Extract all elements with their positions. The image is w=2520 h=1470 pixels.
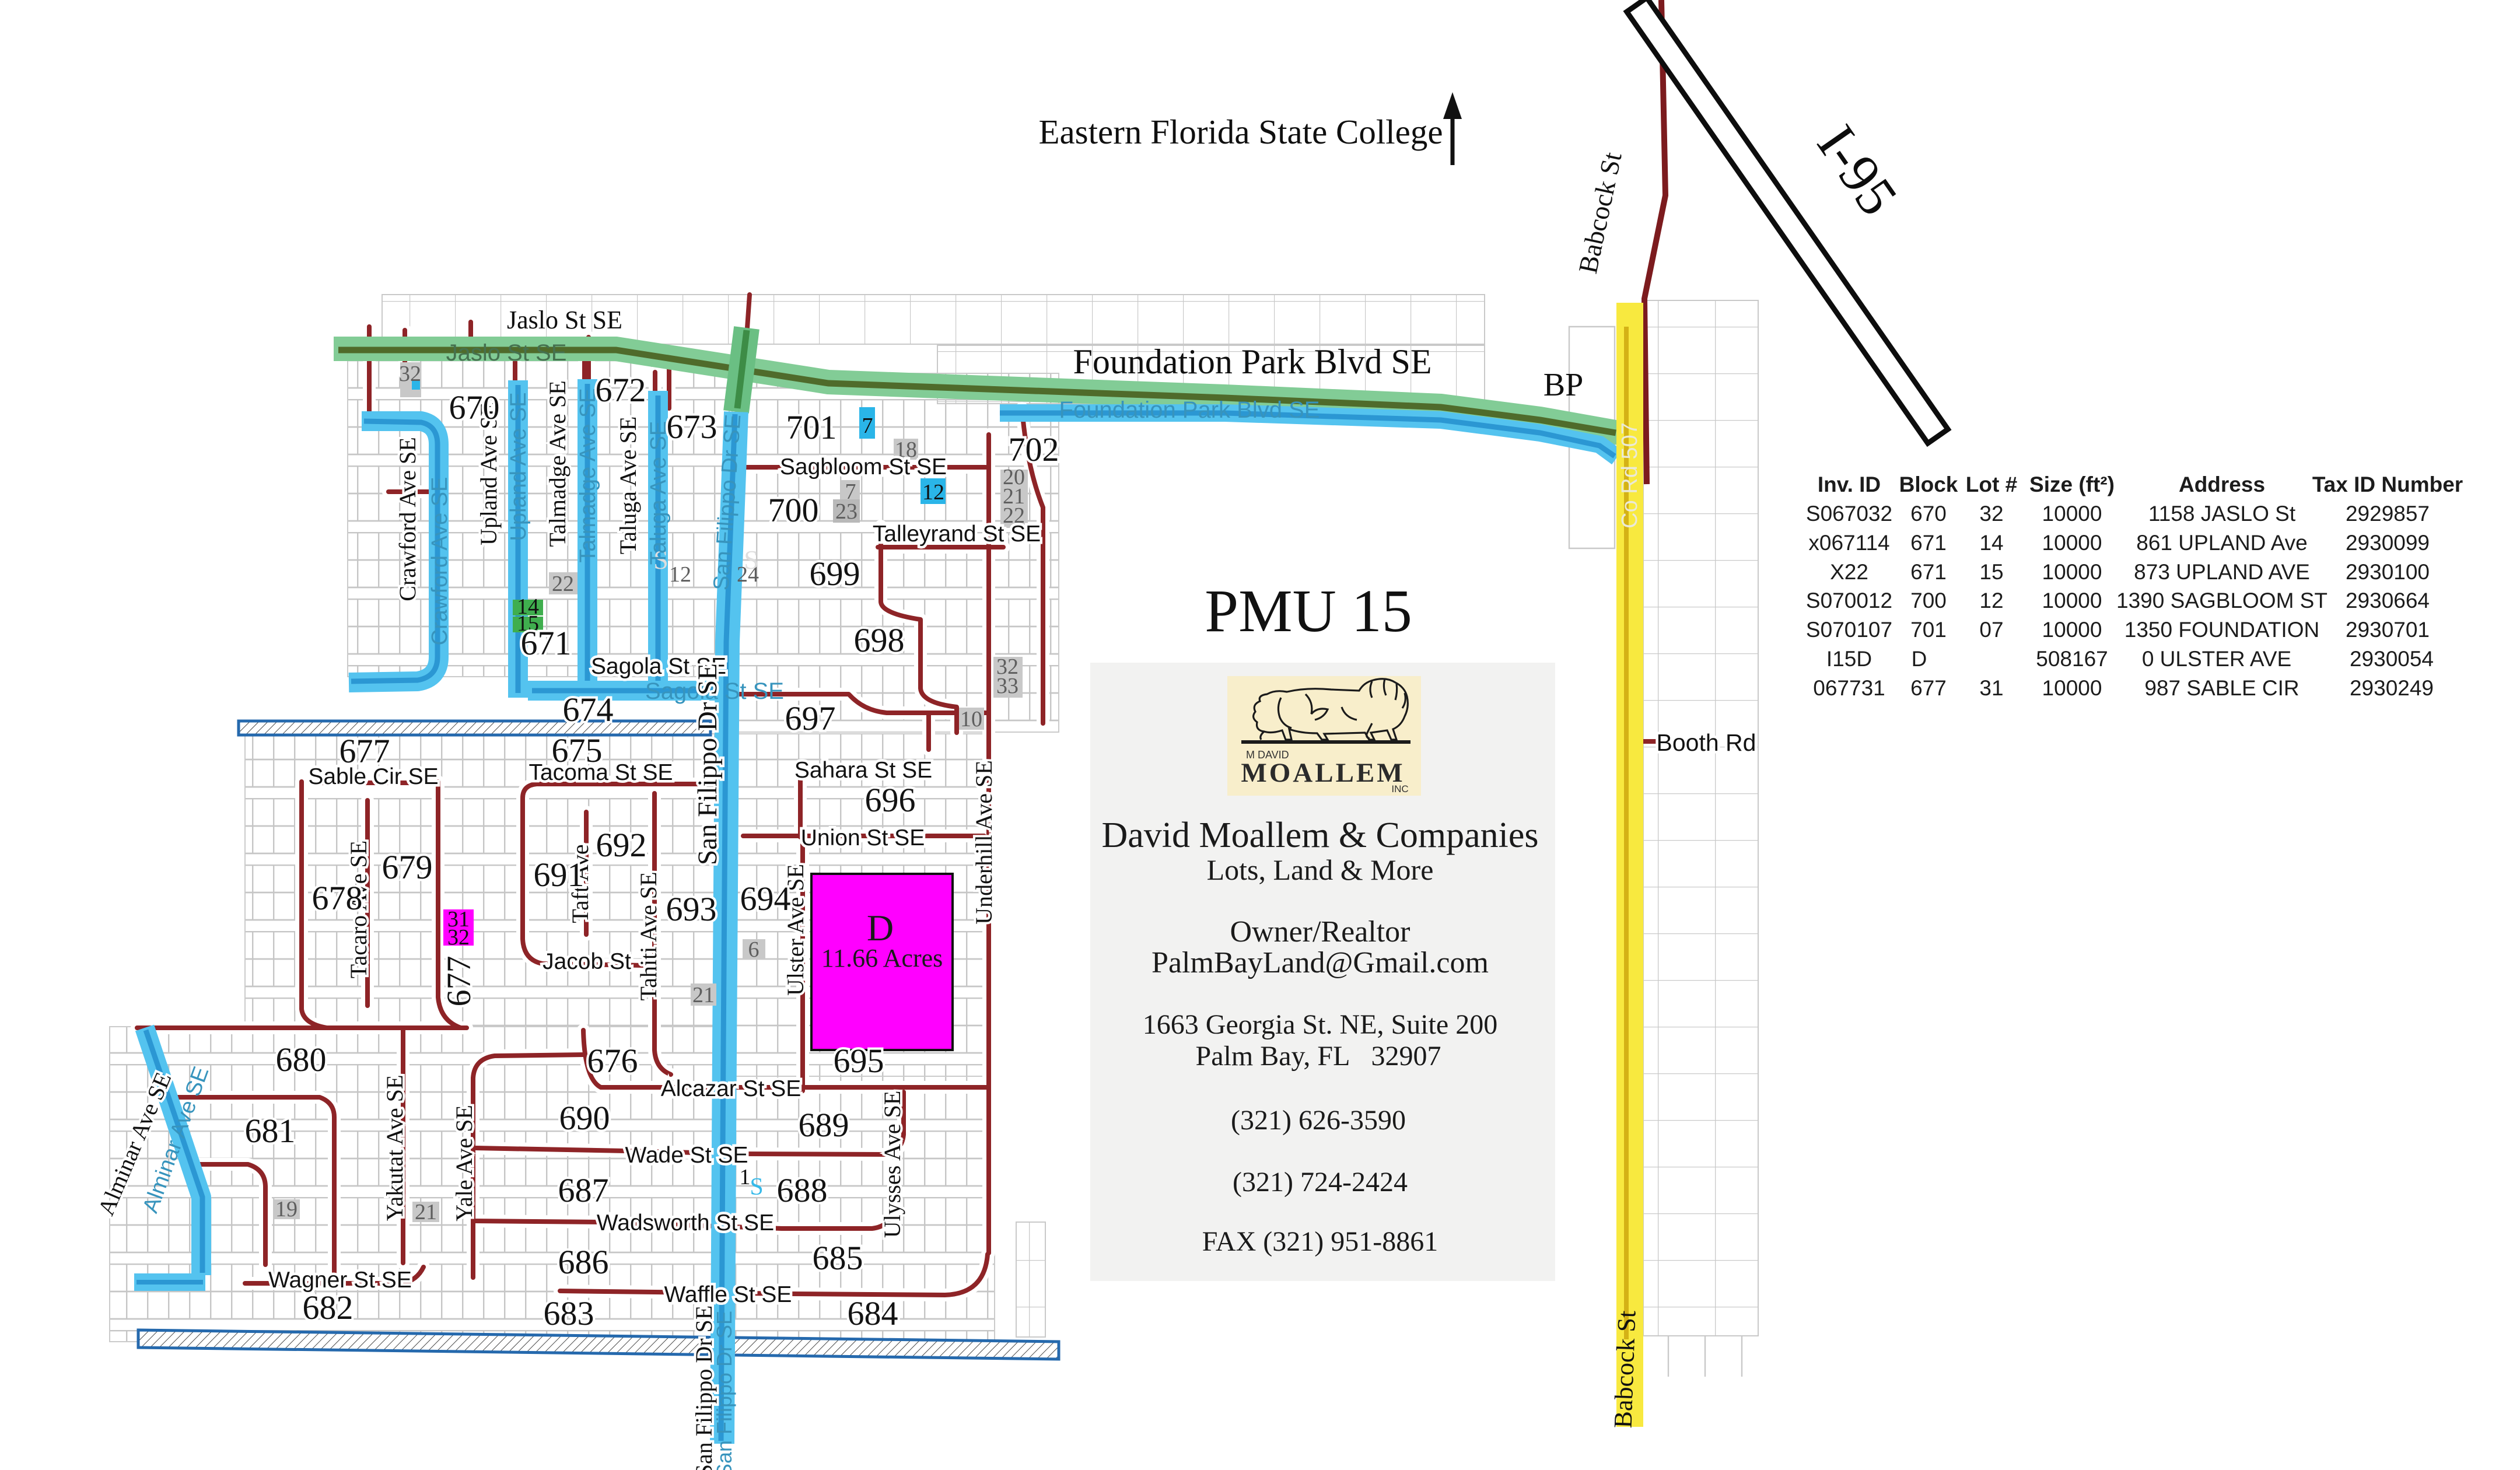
svg-text:679: 679	[382, 848, 433, 886]
svg-text:INC: INC	[1391, 783, 1408, 794]
svg-text:Tahiti Ave SE: Tahiti Ave SE	[635, 872, 661, 1001]
svg-text:677: 677	[1910, 676, 1947, 700]
svg-text:680: 680	[276, 1041, 327, 1079]
svg-text:Palm Bay, FL 32907: Palm Bay, FL 32907	[1196, 1041, 1441, 1072]
svg-text:Block: Block	[1899, 473, 1958, 496]
svg-text:32: 32	[447, 925, 470, 950]
svg-text:Lot #: Lot #	[1966, 473, 2017, 496]
svg-text:Talmadge Ave SE: Talmadge Ave SE	[576, 388, 600, 562]
svg-text:22: 22	[552, 572, 574, 596]
svg-text:691: 691	[534, 856, 584, 894]
svg-text:690: 690	[559, 1099, 610, 1137]
svg-text:Crawford Ave SE: Crawford Ave SE	[394, 437, 421, 601]
svg-text:Alcazar St SE: Alcazar St SE	[661, 1076, 801, 1101]
svg-text:7: 7	[862, 414, 873, 438]
svg-text:2930054: 2930054	[2350, 647, 2434, 671]
svg-text:699: 699	[810, 555, 860, 593]
svg-text:10000: 10000	[2042, 531, 2102, 555]
svg-text:2929857: 2929857	[2346, 502, 2430, 526]
svg-text:(321) 626-3590: (321) 626-3590	[1231, 1105, 1406, 1136]
svg-text:697: 697	[785, 699, 836, 737]
svg-text:700: 700	[768, 491, 819, 529]
svg-text:Owner/Realtor: Owner/Realtor	[1230, 915, 1410, 949]
svg-text:Waffle St SE: Waffle St SE	[664, 1282, 792, 1307]
svg-text:10000: 10000	[2042, 502, 2102, 526]
svg-text:686: 686	[558, 1243, 609, 1281]
svg-text:1390 SAGBLOOM ST: 1390 SAGBLOOM ST	[2116, 589, 2327, 612]
svg-text:2930099: 2930099	[2346, 531, 2430, 555]
svg-text:32: 32	[1979, 502, 2003, 526]
svg-text:682: 682	[303, 1289, 353, 1326]
svg-text:Jaslo St SE: Jaslo St SE	[507, 306, 622, 334]
svg-text:2930701: 2930701	[2346, 618, 2430, 642]
svg-text:6: 6	[748, 937, 759, 962]
svg-text:Crawford Ave SE: Crawford Ave SE	[428, 477, 452, 646]
svg-text:(321) 724-2424: (321) 724-2424	[1233, 1167, 1408, 1198]
svg-text:677: 677	[440, 956, 478, 1007]
svg-text:696: 696	[865, 781, 916, 819]
svg-text:Inv. ID: Inv. ID	[1818, 473, 1881, 496]
svg-text:Upland Ave SE: Upland Ave SE	[506, 393, 531, 541]
svg-text:873 UPLAND AVE: 873 UPLAND AVE	[2134, 560, 2310, 584]
svg-text:Wadsworth St SE: Wadsworth St SE	[597, 1210, 774, 1235]
svg-text:Jacob St: Jacob St	[542, 949, 631, 974]
svg-text:2930249: 2930249	[2350, 676, 2434, 700]
svg-text:31: 31	[1979, 676, 2003, 700]
svg-text:Booth Rd: Booth Rd	[1657, 729, 1756, 756]
svg-text:15: 15	[1979, 560, 2003, 584]
svg-text:1663 Georgia St. NE, Suite 200: 1663 Georgia St. NE, Suite 200	[1143, 1009, 1497, 1040]
svg-text:12: 12	[1979, 589, 2003, 612]
svg-text:700: 700	[1910, 589, 1947, 612]
svg-text:21: 21	[415, 1200, 437, 1224]
svg-text:19: 19	[275, 1197, 297, 1221]
svg-text:S070012: S070012	[1806, 589, 1892, 612]
svg-text:2930664: 2930664	[2346, 589, 2430, 612]
svg-text:0 ULSTER AVE: 0 ULSTER AVE	[2142, 647, 2291, 671]
svg-text:1350 FOUNDATION: 1350 FOUNDATION	[2124, 618, 2319, 642]
svg-text:689: 689	[799, 1106, 849, 1144]
svg-text:685: 685	[813, 1239, 863, 1277]
svg-text:678: 678	[312, 879, 363, 917]
svg-text:12: 12	[922, 480, 944, 505]
svg-text:672: 672	[596, 371, 646, 409]
svg-text:067731: 067731	[1813, 676, 1885, 700]
svg-text:2930100: 2930100	[2346, 560, 2430, 584]
svg-text:San Filippo Dr SE: San Filippo Dr SE	[712, 1311, 736, 1470]
svg-text:D: D	[867, 907, 894, 949]
svg-text:David Moallem & Companies: David Moallem & Companies	[1101, 815, 1538, 855]
svg-text:Babcock St: Babcock St	[1609, 1310, 1641, 1429]
svg-text:677: 677	[339, 732, 390, 770]
svg-text:674: 674	[563, 691, 614, 729]
svg-text:07: 07	[1979, 618, 2003, 642]
svg-text:508167: 508167	[2036, 647, 2108, 671]
svg-text:Foundation Park Blvd SE: Foundation Park Blvd SE	[1073, 342, 1431, 381]
svg-text:Wade St SE: Wade St SE	[625, 1143, 748, 1168]
svg-text:MOALLEM: MOALLEM	[1241, 758, 1405, 788]
svg-text:670: 670	[449, 388, 500, 426]
svg-text:698: 698	[854, 621, 905, 659]
svg-text:Yakutat Ave SE: Yakutat Ave SE	[381, 1075, 408, 1221]
svg-text:FAX (321) 951-8861: FAX (321) 951-8861	[1202, 1226, 1438, 1257]
svg-text:Tax ID Number: Tax ID Number	[2312, 473, 2463, 496]
svg-text:21: 21	[692, 983, 715, 1007]
svg-text:687: 687	[558, 1171, 609, 1209]
svg-text:694: 694	[740, 880, 791, 918]
svg-text:Union St SE: Union St SE	[801, 825, 925, 850]
svg-text:Taluga Ave SE: Taluga Ave SE	[615, 416, 641, 554]
svg-text:14: 14	[1979, 531, 2003, 555]
svg-text:Size (ft²): Size (ft²)	[2029, 473, 2115, 496]
svg-text:Yale Ave SE: Yale Ave SE	[451, 1105, 477, 1221]
svg-text:10000: 10000	[2042, 589, 2102, 612]
svg-text:I15D: I15D	[1826, 647, 1872, 671]
svg-text:861 UPLAND Ave: 861 UPLAND Ave	[2136, 531, 2307, 555]
svg-text:Underhill Ave SE: Underhill Ave SE	[971, 760, 997, 924]
svg-text:684: 684	[848, 1294, 898, 1332]
svg-text:Talleyrand St SE: Talleyrand St SE	[873, 521, 1041, 547]
svg-text:San Filippo Dr SE: San Filippo Dr SE	[692, 663, 723, 865]
svg-text:PMU 15: PMU 15	[1205, 577, 1412, 645]
svg-text:1158 JASLO St: 1158 JASLO St	[2148, 502, 2296, 526]
svg-text:32: 32	[399, 362, 421, 386]
svg-text:683: 683	[544, 1294, 594, 1332]
svg-text:X22: X22	[1830, 560, 1868, 584]
svg-text:681: 681	[245, 1112, 296, 1150]
svg-text:S: S	[744, 545, 759, 575]
svg-text:12: 12	[669, 562, 691, 587]
svg-text:Eastern Florida State College: Eastern Florida State College	[1038, 113, 1443, 151]
svg-text:Sahara St SE: Sahara St SE	[794, 758, 932, 783]
svg-text:701: 701	[1910, 618, 1947, 642]
svg-text:S070107: S070107	[1806, 618, 1892, 642]
svg-text:33: 33	[996, 674, 1019, 698]
svg-text:D: D	[1912, 647, 1927, 671]
svg-text:671: 671	[521, 624, 572, 662]
svg-text:673: 673	[667, 408, 717, 446]
svg-text:693: 693	[666, 890, 717, 928]
svg-text:Sagbloom St SE: Sagbloom St SE	[780, 454, 947, 480]
svg-text:676: 676	[587, 1042, 638, 1080]
svg-text:PalmBayLand@Gmail.com: PalmBayLand@Gmail.com	[1151, 946, 1489, 979]
svg-text:702: 702	[1009, 430, 1059, 468]
svg-text:671: 671	[1910, 531, 1947, 555]
svg-text:701: 701	[786, 408, 837, 446]
svg-text:692: 692	[596, 826, 647, 864]
svg-text:Talmadge Ave SE: Talmadge Ave SE	[544, 380, 570, 547]
svg-text:670: 670	[1910, 502, 1947, 526]
svg-text:BP: BP	[1543, 367, 1584, 403]
svg-text:S067032: S067032	[1806, 502, 1892, 526]
svg-text:695: 695	[834, 1042, 884, 1080]
svg-text:671: 671	[1910, 560, 1947, 584]
svg-text:688: 688	[777, 1171, 828, 1209]
svg-text:23: 23	[835, 499, 857, 524]
svg-text:Jaslo St SE: Jaslo St SE	[446, 340, 567, 366]
svg-text:Address: Address	[2179, 473, 2265, 496]
svg-text:11.66 Acres: 11.66 Acres	[821, 944, 943, 972]
svg-text:675: 675	[552, 731, 603, 769]
svg-text:987 SABLE CIR: 987 SABLE CIR	[2144, 676, 2299, 700]
svg-text:Co Rd 507: Co Rd 507	[1618, 422, 1642, 528]
svg-text:x067114: x067114	[1808, 531, 1889, 555]
svg-text:10: 10	[960, 707, 982, 731]
svg-text:10000: 10000	[2042, 618, 2102, 642]
svg-text:Lots, Land & More: Lots, Land & More	[1207, 853, 1434, 886]
svg-text:1: 1	[740, 1165, 751, 1189]
svg-text:10000: 10000	[2042, 676, 2102, 700]
svg-text:10000: 10000	[2042, 560, 2102, 584]
svg-text:S: S	[750, 1174, 763, 1200]
svg-text:Foundation Park Blvd SE: Foundation Park Blvd SE	[1059, 397, 1320, 423]
svg-text:Ulysses Ave SE: Ulysses Ave SE	[879, 1091, 905, 1238]
